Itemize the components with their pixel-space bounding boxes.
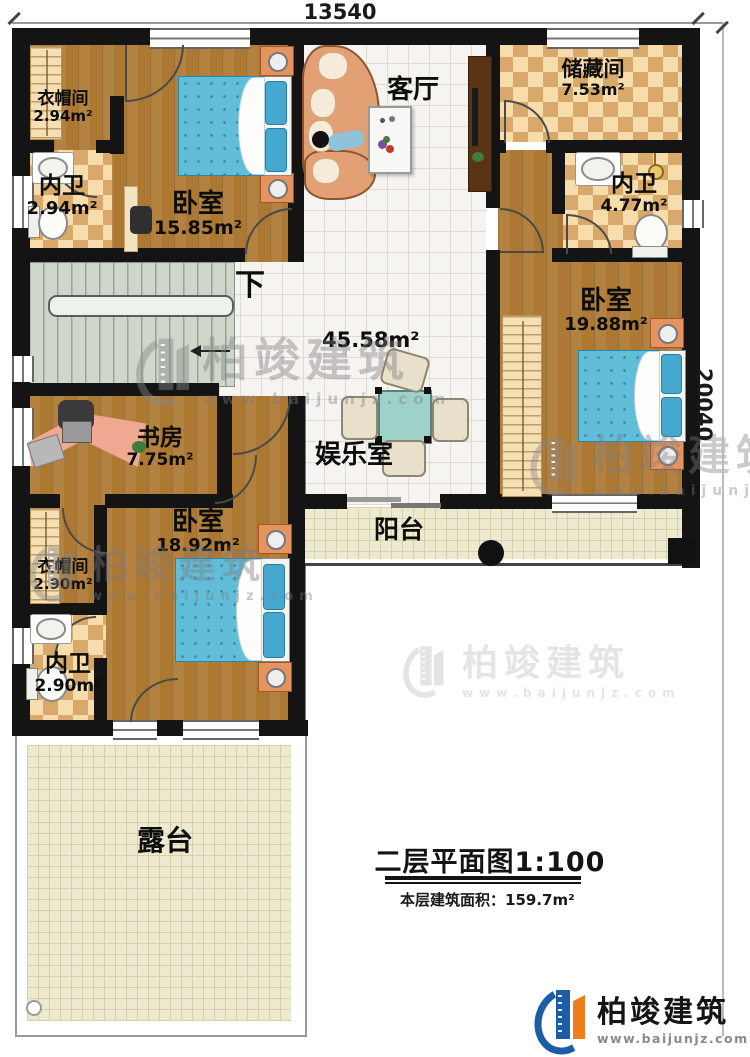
- sliding-door-a: [347, 497, 401, 502]
- room-label-bath-right: 内卫 4.77m²: [592, 172, 676, 215]
- room-label-bedroom-top: 卧室 15.85m²: [148, 190, 248, 239]
- nightstand: [260, 173, 294, 203]
- wall-bath-right-left: [552, 153, 565, 214]
- nightstand: [650, 440, 684, 470]
- room-label-hall-area: 45.58m²: [322, 329, 414, 352]
- bed-pillow: [265, 81, 287, 125]
- tv: [472, 88, 478, 146]
- table-item: [380, 118, 385, 123]
- wall-study-bottom-a: [12, 494, 60, 508]
- dimension-width: 13540: [290, 0, 390, 24]
- stair-arrow-icon: [190, 345, 201, 357]
- chair: [432, 398, 469, 442]
- wall-balcony-a: [305, 494, 347, 509]
- nightstand: [258, 524, 292, 554]
- room-label-living: 客厅: [375, 76, 451, 104]
- sofa-cushion: [318, 52, 348, 80]
- table-corner: [375, 387, 382, 394]
- room-label-study: 书房 7.75m²: [118, 426, 202, 469]
- bed-pillow: [265, 128, 287, 172]
- stair-handrail: [48, 295, 234, 317]
- company-website: www.baijunjz.com: [597, 1031, 749, 1046]
- table-corner: [424, 436, 431, 443]
- room-label-bedroom-bottom: 卧室 18.92m²: [148, 508, 248, 556]
- watermark-logo-icon: [404, 642, 449, 692]
- table-corner: [424, 387, 431, 394]
- wall-bottom: [12, 720, 308, 736]
- sofa-cushion: [310, 88, 336, 118]
- bed-pillow: [661, 354, 682, 394]
- page-title: 二层平面图1:100: [360, 840, 620, 879]
- stairs: [28, 262, 235, 387]
- bed-pillow: [263, 612, 285, 658]
- room-label-cloakroom-bottom: 衣帽间 2.90m²: [20, 558, 106, 593]
- room-label-storage: 储藏间 7.53m²: [543, 58, 643, 98]
- room-label-bath-bottom: 内卫 2.90m²: [26, 652, 110, 695]
- flowers: [386, 145, 394, 153]
- stairs-down-label: 下: [228, 270, 272, 302]
- wall-storage-bottom-b: [546, 140, 698, 153]
- company-name: 柏竣建筑: [597, 987, 749, 1031]
- bed-blanket: [236, 559, 262, 661]
- watermark: 柏竣建筑www.baijunjz.com: [398, 634, 681, 700]
- dimension-line-right: [722, 22, 724, 1036]
- wall-living-right-b: [486, 250, 500, 507]
- floor-area-line: 本层建筑面积：159.7m²: [400, 889, 575, 910]
- nightstand: [650, 318, 684, 348]
- sliding-door-b: [391, 503, 441, 508]
- bed-pillow: [263, 564, 285, 610]
- window-bottom-b: [183, 720, 259, 740]
- wall-bath-top-b: [96, 140, 124, 153]
- sink: [30, 614, 72, 644]
- bed-pillow: [661, 397, 682, 437]
- floor-terrace: [27, 745, 291, 1021]
- window-left-stairs: [12, 356, 34, 382]
- nightstand: [260, 46, 294, 76]
- wall-right: [682, 28, 700, 568]
- room-label-game: 娱乐室: [306, 441, 402, 469]
- flowers: [383, 136, 390, 143]
- terrace-drain: [26, 1000, 42, 1016]
- balcony-column: [478, 540, 504, 566]
- company-logo: 柏竣建筑 www.baijunjz.com: [535, 985, 749, 1047]
- balcony-pillar: [668, 538, 696, 564]
- room-label-bath-top: 内卫 2.94m²: [18, 174, 106, 218]
- room-label-terrace: 露台: [128, 826, 202, 856]
- room-label-bedroom-right: 卧室 19.88m²: [558, 287, 654, 335]
- room-label-cloakroom-top: 衣帽间 2.94m²: [20, 90, 106, 125]
- window-balcony: [552, 494, 637, 513]
- floor-plan-canvas: 衣帽间 2.94m² 内卫 2.94m² 卧室 15.85m² 客厅 储藏间 7…: [0, 0, 750, 1057]
- title-underline: [385, 876, 581, 880]
- bed-blanket: [238, 77, 265, 175]
- stair-arrow-line: [200, 350, 230, 352]
- monitor: [62, 421, 92, 443]
- bed-blanket: [634, 351, 660, 441]
- sofa-cushion: [312, 158, 340, 184]
- wall-balcony-c: [637, 494, 698, 509]
- window-right-bath: [682, 200, 704, 228]
- chair: [341, 396, 378, 440]
- wall-stairs-bottom: [12, 383, 219, 396]
- window-top-storage: [547, 28, 639, 49]
- floor-area-value: 159.7m²: [505, 891, 575, 909]
- room-label-balcony: 阳台: [364, 516, 434, 543]
- plant: [472, 152, 484, 162]
- person-head: [312, 131, 329, 148]
- toilet-tank: [632, 246, 668, 258]
- floor-area-label: 本层建筑面积：: [400, 891, 505, 909]
- nightstand: [258, 662, 292, 692]
- wall-study-bottom-b: [105, 494, 233, 508]
- closet-right: [502, 315, 542, 497]
- company-logo-text: 柏竣建筑 www.baijunjz.com: [597, 987, 749, 1046]
- company-logo-icon: [535, 985, 591, 1047]
- window-bottom-a: [113, 720, 157, 740]
- dimension-height: 20040: [692, 368, 716, 441]
- table-item: [389, 116, 395, 122]
- title-underline-thin: [385, 882, 581, 884]
